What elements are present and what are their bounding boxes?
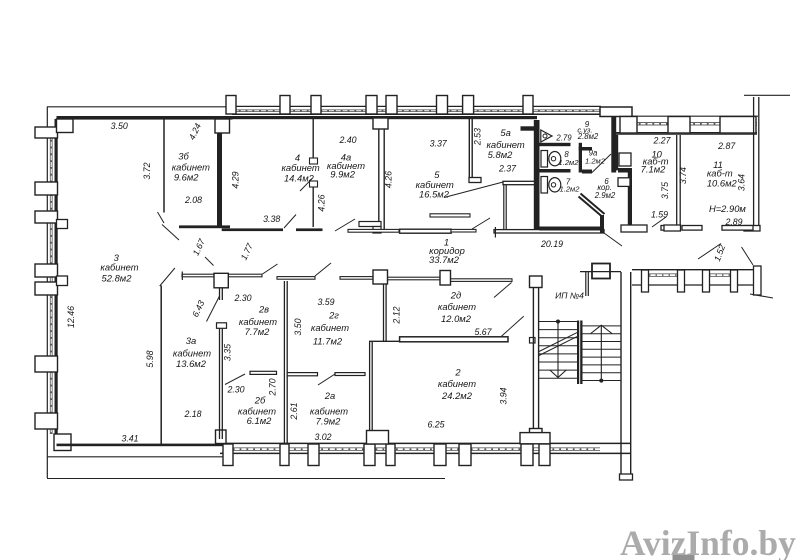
svg-text:2.89: 2.89 <box>724 217 742 227</box>
svg-text:3.35: 3.35 <box>223 344 233 361</box>
svg-text:2г: 2г <box>328 310 339 321</box>
svg-text:кабинет: кабинет <box>173 348 211 359</box>
svg-text:2а: 2а <box>324 390 335 401</box>
svg-text:2б: 2б <box>254 395 266 406</box>
svg-text:2в: 2в <box>258 304 269 315</box>
svg-text:3.94: 3.94 <box>499 387 509 404</box>
svg-text:2.30: 2.30 <box>233 293 251 303</box>
svg-text:3.37: 3.37 <box>430 139 448 149</box>
svg-text:1.2м2: 1.2м2 <box>585 156 606 165</box>
svg-text:3.02: 3.02 <box>314 432 331 442</box>
svg-text:1.2м2: 1.2м2 <box>559 158 580 167</box>
svg-text:2.37: 2.37 <box>498 164 517 174</box>
svg-text:6.1м2: 6.1м2 <box>247 415 272 426</box>
svg-text:3.41: 3.41 <box>121 434 138 444</box>
svg-text:ИП №4: ИП №4 <box>555 291 584 301</box>
svg-text:5а: 5а <box>500 127 510 138</box>
svg-text:2.18: 2.18 <box>183 409 201 419</box>
svg-text:3.38: 3.38 <box>263 214 280 224</box>
svg-text:2.87: 2.87 <box>717 141 736 151</box>
svg-text:2: 2 <box>454 367 461 378</box>
svg-text:4.26: 4.26 <box>317 194 327 211</box>
svg-text:12.46: 12.46 <box>66 306 76 328</box>
svg-text:33.7м2: 33.7м2 <box>429 254 460 265</box>
svg-text:3б: 3б <box>178 151 189 162</box>
svg-text:кабинет: кабинет <box>281 162 319 173</box>
svg-text:24.2м2: 24.2м2 <box>441 390 473 401</box>
svg-text:2.61: 2.61 <box>289 402 299 420</box>
svg-text:2.79: 2.79 <box>555 134 572 143</box>
svg-text:кабинет: кабинет <box>438 301 476 312</box>
svg-text:3.75: 3.75 <box>660 182 670 199</box>
svg-text:3.59: 3.59 <box>317 297 334 307</box>
svg-text:9.6м2: 9.6м2 <box>174 172 199 183</box>
svg-text:2д: 2д <box>450 290 461 301</box>
svg-text:2.40: 2.40 <box>338 135 356 145</box>
svg-text:4.26: 4.26 <box>384 171 394 188</box>
svg-text:14.4м2: 14.4м2 <box>284 173 315 184</box>
svg-text:7.1м2: 7.1м2 <box>641 164 666 175</box>
svg-text:3.72: 3.72 <box>142 162 152 179</box>
svg-text:2.53: 2.53 <box>473 128 483 146</box>
svg-text:10.6м2: 10.6м2 <box>707 178 738 189</box>
svg-text:9.9м2: 9.9м2 <box>330 168 355 179</box>
svg-text:5.67: 5.67 <box>474 327 492 337</box>
svg-text:3а: 3а <box>186 335 196 346</box>
svg-text:3.74: 3.74 <box>678 167 688 184</box>
svg-text:11.7м2: 11.7м2 <box>313 336 343 347</box>
svg-text:3.50: 3.50 <box>293 318 303 335</box>
svg-text:3.64: 3.64 <box>736 174 746 191</box>
svg-text:2.8м2: 2.8м2 <box>577 132 599 141</box>
svg-text:13.6м2: 13.6м2 <box>176 358 207 369</box>
svg-text:1.2м2: 1.2м2 <box>560 185 581 194</box>
svg-text:2.08: 2.08 <box>184 195 202 205</box>
svg-text:7.9м2: 7.9м2 <box>316 416 341 427</box>
svg-text:2.70: 2.70 <box>268 378 278 396</box>
svg-text:7.7м2: 7.7м2 <box>245 326 270 337</box>
svg-text:2.27: 2.27 <box>652 136 671 146</box>
svg-text:4.29: 4.29 <box>230 171 240 188</box>
svg-text:Н=2.90м: Н=2.90м <box>709 203 746 214</box>
svg-text:кабинет: кабинет <box>438 378 476 389</box>
svg-text:2.12: 2.12 <box>392 306 402 324</box>
svg-text:2.30: 2.30 <box>226 385 244 395</box>
svg-text:5.98: 5.98 <box>145 350 155 367</box>
svg-text:кабинет: кабинет <box>100 262 138 273</box>
svg-text:1.59: 1.59 <box>651 210 668 220</box>
svg-text:52.8м2: 52.8м2 <box>102 273 133 284</box>
svg-text:20.19: 20.19 <box>540 239 563 249</box>
svg-text:5.8м2: 5.8м2 <box>488 149 513 160</box>
svg-text:16.5м2: 16.5м2 <box>419 189 450 200</box>
svg-text:2.9м2: 2.9м2 <box>594 191 616 200</box>
svg-text:кабинет: кабинет <box>311 322 349 333</box>
svg-text:AvizInfo.by: AvizInfo.by <box>620 523 796 560</box>
svg-text:12.0м2: 12.0м2 <box>441 313 472 324</box>
svg-text:3.50: 3.50 <box>111 121 128 131</box>
svg-text:6.25: 6.25 <box>427 420 444 430</box>
